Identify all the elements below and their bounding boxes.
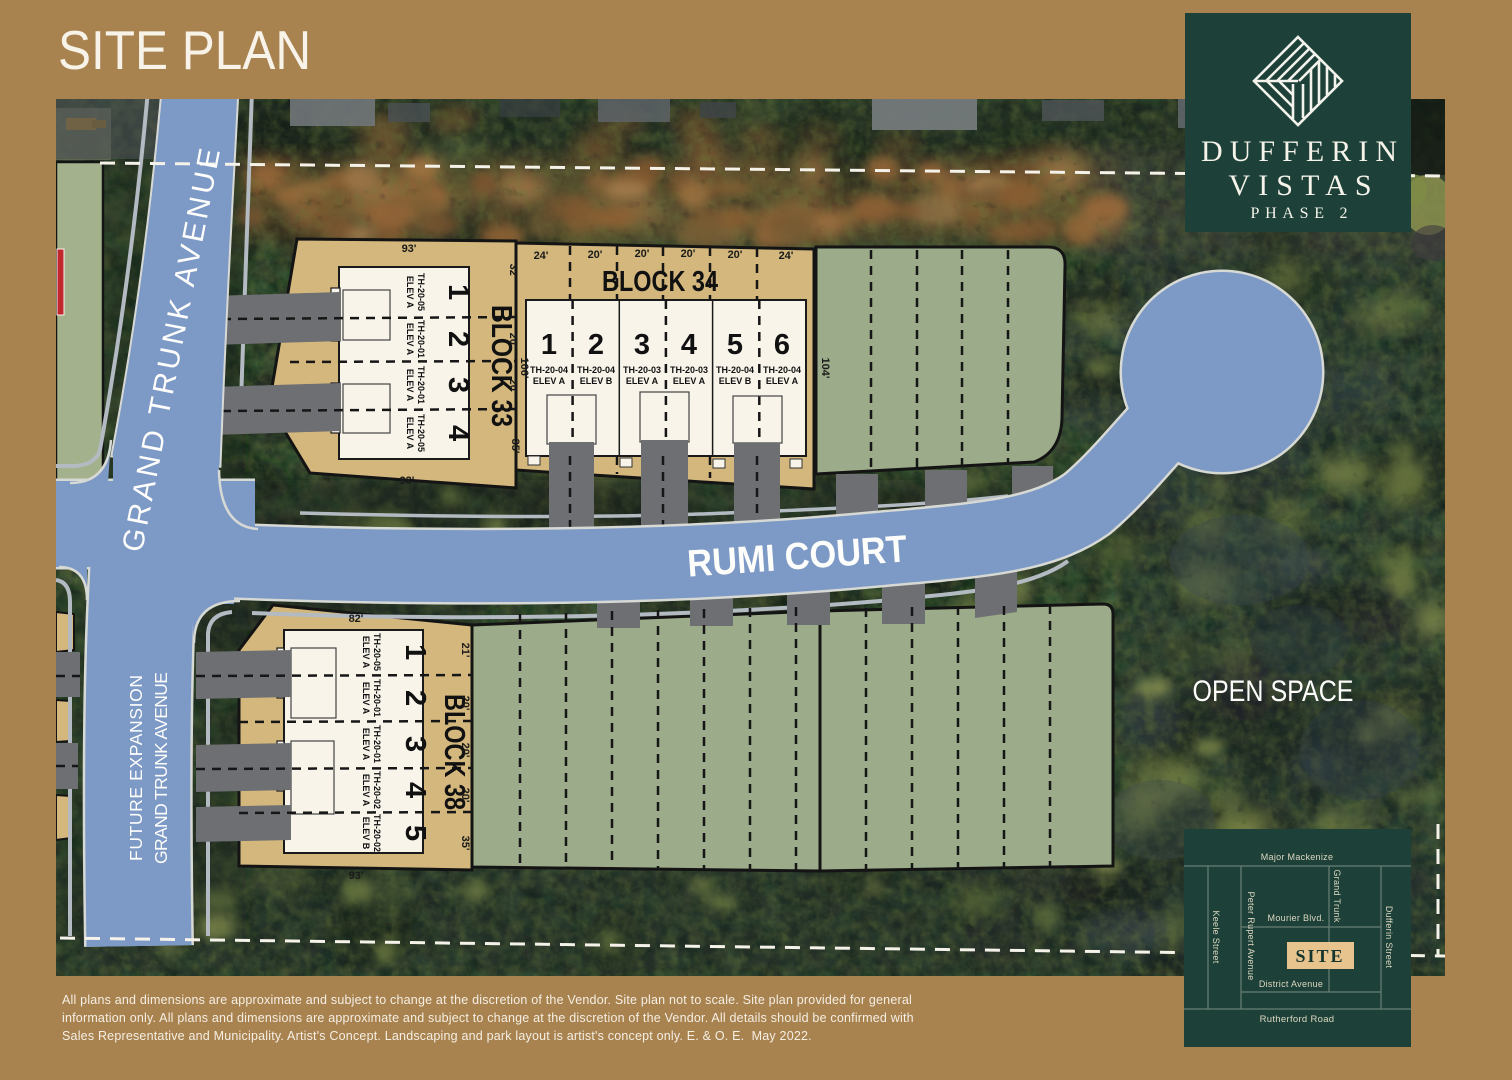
svg-text:GRAND TRUNK AVENUE: GRAND TRUNK AVENUE xyxy=(151,672,171,864)
svg-text:1: 1 xyxy=(442,284,474,300)
svg-text:ELEV B: ELEV B xyxy=(361,817,371,850)
svg-text:Rutherford Road: Rutherford Road xyxy=(1260,1014,1335,1025)
svg-text:4: 4 xyxy=(442,425,474,441)
svg-text:TH-20-03: TH-20-03 xyxy=(623,365,661,375)
svg-text:20': 20' xyxy=(728,249,743,261)
svg-text:Keele Street: Keele Street xyxy=(1211,910,1221,963)
svg-text:20': 20' xyxy=(507,379,519,394)
svg-text:93': 93' xyxy=(402,243,417,255)
svg-text:TH-20-01: TH-20-01 xyxy=(416,320,426,358)
svg-text:24': 24' xyxy=(779,250,794,262)
svg-text:Grand Trunk: Grand Trunk xyxy=(1332,869,1342,923)
svg-text:106': 106' xyxy=(518,358,530,379)
svg-text:SITE: SITE xyxy=(1295,946,1344,966)
svg-text:93': 93' xyxy=(400,475,415,487)
svg-text:24': 24' xyxy=(534,250,549,262)
svg-text:ELEV A: ELEV A xyxy=(405,369,415,402)
svg-text:ELEV A: ELEV A xyxy=(405,323,415,356)
svg-text:ELEV A: ELEV A xyxy=(361,728,371,761)
svg-text:TH-20-01: TH-20-01 xyxy=(372,679,382,717)
svg-text:BLOCK 33: BLOCK 33 xyxy=(485,305,517,427)
svg-text:ELEV A: ELEV A xyxy=(361,682,371,715)
svg-text:20': 20' xyxy=(507,333,519,348)
svg-text:TH-20-04: TH-20-04 xyxy=(577,365,615,375)
svg-text:20': 20' xyxy=(459,696,471,711)
svg-text:3: 3 xyxy=(399,736,431,752)
svg-text:6: 6 xyxy=(774,329,790,361)
svg-text:Peter Rupert Avenue: Peter Rupert Avenue xyxy=(1246,891,1256,980)
svg-text:TH-20-01: TH-20-01 xyxy=(372,725,382,763)
svg-text:35': 35' xyxy=(459,836,471,851)
svg-text:FUTURE EXPANSION: FUTURE EXPANSION xyxy=(126,675,146,861)
svg-text:20': 20' xyxy=(588,249,603,261)
svg-text:104': 104' xyxy=(819,358,831,379)
svg-text:District Avenue: District Avenue xyxy=(1259,979,1323,989)
svg-text:ELEV A: ELEV A xyxy=(673,376,706,386)
svg-text:2: 2 xyxy=(588,329,604,361)
svg-text:TH-20-02: TH-20-02 xyxy=(372,814,382,852)
svg-text:ELEV A: ELEV A xyxy=(361,636,371,669)
svg-text:4: 4 xyxy=(681,329,697,361)
svg-text:TH-20-03: TH-20-03 xyxy=(670,365,708,375)
svg-text:TH-20-05: TH-20-05 xyxy=(416,273,426,311)
svg-text:ELEV A: ELEV A xyxy=(361,774,371,807)
svg-text:ELEV B: ELEV B xyxy=(719,376,752,386)
svg-text:20': 20' xyxy=(459,788,471,803)
svg-text:Major Mackenize: Major Mackenize xyxy=(1261,852,1334,862)
svg-text:20': 20' xyxy=(681,248,696,260)
svg-text:21': 21' xyxy=(459,643,471,658)
svg-text:TH-20-04: TH-20-04 xyxy=(530,365,568,375)
svg-text:2: 2 xyxy=(442,331,474,347)
svg-text:82': 82' xyxy=(349,613,364,625)
svg-text:ELEV A: ELEV A xyxy=(766,376,799,386)
svg-text:ELEV A: ELEV A xyxy=(533,376,566,386)
svg-text:ELEV B: ELEV B xyxy=(580,376,613,386)
svg-text:1: 1 xyxy=(399,644,431,660)
svg-text:TH-20-04: TH-20-04 xyxy=(716,365,754,375)
svg-text:TH-20-05: TH-20-05 xyxy=(416,414,426,452)
svg-text:4: 4 xyxy=(399,782,431,798)
svg-text:TH-20-01: TH-20-01 xyxy=(416,366,426,404)
svg-text:Dufferin Street: Dufferin Street xyxy=(1384,906,1394,969)
svg-text:ELEV A: ELEV A xyxy=(626,376,659,386)
svg-text:20': 20' xyxy=(459,743,471,758)
svg-text:TH-20-04: TH-20-04 xyxy=(763,365,801,375)
svg-text:OPEN SPACE: OPEN SPACE xyxy=(1193,675,1354,708)
svg-text:1: 1 xyxy=(541,329,557,361)
svg-text:ELEV A: ELEV A xyxy=(405,276,415,309)
svg-text:BLOCK 34: BLOCK 34 xyxy=(602,266,718,298)
svg-text:PHASE 2: PHASE 2 xyxy=(1251,205,1348,222)
svg-text:5: 5 xyxy=(399,825,431,841)
svg-text:3: 3 xyxy=(634,329,650,361)
svg-text:TH-20-02: TH-20-02 xyxy=(372,771,382,809)
svg-text:3: 3 xyxy=(442,377,474,393)
svg-text:32': 32' xyxy=(507,264,519,279)
svg-text:Mourier Blvd.: Mourier Blvd. xyxy=(1268,913,1325,923)
svg-text:TH-20-05: TH-20-05 xyxy=(372,633,382,671)
svg-text:2: 2 xyxy=(399,690,431,706)
svg-text:35': 35' xyxy=(509,439,521,454)
svg-text:ELEV A: ELEV A xyxy=(405,417,415,450)
svg-text:5: 5 xyxy=(727,329,743,361)
svg-text:93': 93' xyxy=(349,870,364,882)
svg-text:20': 20' xyxy=(635,248,650,260)
